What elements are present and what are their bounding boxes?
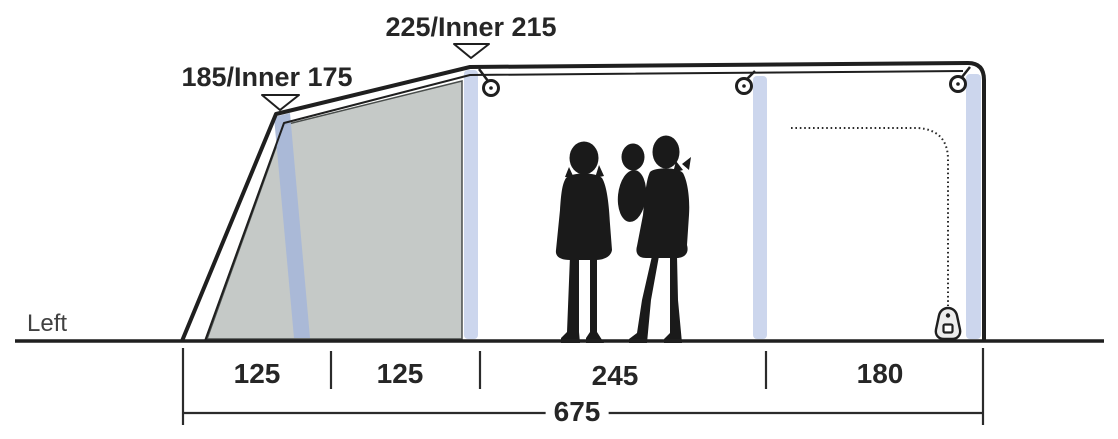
height-marker-icon	[454, 44, 489, 58]
front-height-label: 185/Inner 175	[181, 62, 352, 93]
zipper-pull-icon	[936, 308, 960, 339]
total-length-label: 675	[546, 396, 609, 428]
inner-tent-panel	[207, 81, 462, 339]
tent-profile-drawing	[0, 0, 1118, 439]
main-height-label: 225/Inner 215	[385, 12, 556, 43]
air-pole-middle	[753, 76, 767, 339]
section-width-label-3: 245	[592, 360, 639, 392]
section-width-label-1: 125	[234, 358, 281, 390]
door-seam-outline	[791, 128, 948, 306]
section-width-label-4: 180	[857, 358, 904, 390]
grommet-icon	[737, 71, 756, 94]
view-side-label: Left	[27, 310, 67, 338]
people-silhouette	[556, 136, 691, 344]
air-pole-rear	[966, 74, 981, 339]
air-pole-front	[464, 70, 478, 339]
tent-dimension-diagram: 185/Inner 175 225/Inner 215 Left 125 125…	[0, 0, 1118, 439]
grommet-icon	[479, 69, 499, 96]
section-width-label-2: 125	[377, 358, 424, 390]
